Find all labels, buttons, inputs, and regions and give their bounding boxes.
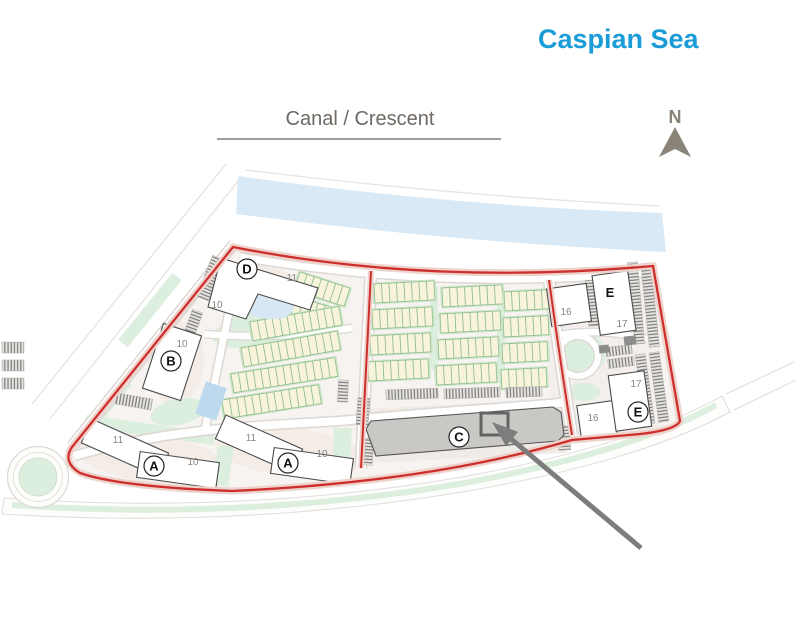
building-label-a2: A xyxy=(278,453,298,473)
parking-strip xyxy=(2,378,24,389)
building-label-e-top: E xyxy=(606,285,615,300)
plot-number: 17 xyxy=(630,379,642,390)
north-label: N xyxy=(669,107,682,127)
townhouse-row xyxy=(372,279,437,304)
parking-strip xyxy=(2,360,24,371)
parking-strip xyxy=(2,342,24,353)
townhouse-row xyxy=(366,357,431,382)
townhouse-row xyxy=(370,305,435,330)
building-label-b: B xyxy=(161,351,181,371)
building-label-c: C xyxy=(449,427,469,447)
masterplan-page: Caspian Sea Canal / Crescent xyxy=(0,0,800,624)
plot-number: 10 xyxy=(211,300,223,311)
plot-number: 11 xyxy=(113,435,124,446)
plot-number: 17 xyxy=(616,319,628,330)
roundabout xyxy=(8,447,69,508)
townhouse-row xyxy=(440,283,505,308)
townhouse-row xyxy=(502,288,552,313)
plot-number: 10 xyxy=(187,457,199,468)
plot-number: 16 xyxy=(560,307,572,318)
svg-text:B: B xyxy=(166,354,175,369)
north-arrow: N xyxy=(659,107,691,157)
plot-number: 11 xyxy=(287,273,298,284)
townhouse-row xyxy=(436,335,501,360)
svg-text:A: A xyxy=(149,459,159,474)
townhouse-row xyxy=(434,361,499,386)
north-arrow-icon xyxy=(659,127,691,157)
plot-number: 16 xyxy=(587,413,599,424)
site-plan-map: D B A A C E E xyxy=(0,0,800,624)
building-e-top xyxy=(592,271,636,335)
svg-text:C: C xyxy=(454,430,464,445)
parking-strip xyxy=(444,387,500,399)
plot-number: 10 xyxy=(176,339,188,350)
building-label-d: D xyxy=(237,259,257,279)
svg-text:E: E xyxy=(606,285,615,300)
townhouse-row xyxy=(500,340,550,365)
svg-text:E: E xyxy=(634,405,643,420)
plot-number: 11 xyxy=(246,433,257,444)
building-label-a1: A xyxy=(144,456,164,476)
parking-strip xyxy=(386,388,438,400)
parking-strip xyxy=(337,380,348,402)
townhouse-row xyxy=(368,331,433,356)
canal-water xyxy=(236,176,666,252)
townhouse-row xyxy=(438,309,503,334)
svg-text:D: D xyxy=(242,262,251,277)
svg-text:A: A xyxy=(283,456,293,471)
townhouse-row xyxy=(501,314,551,339)
plot-number: 10 xyxy=(316,449,328,460)
parking-strip xyxy=(506,386,542,397)
building-label-e-bottom: E xyxy=(628,402,648,422)
